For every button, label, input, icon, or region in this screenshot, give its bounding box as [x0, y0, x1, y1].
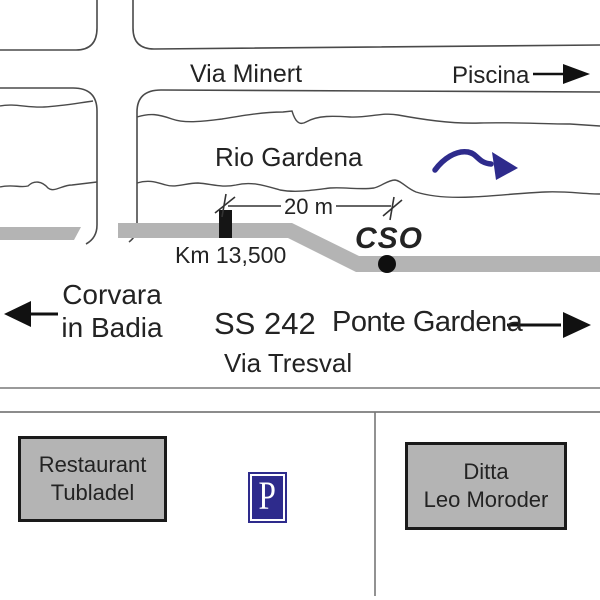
- side-road-left-edge: [0, 0, 97, 50]
- map-canvas: Via Minert Piscina Rio Gardena 20 m Km 1…: [0, 0, 600, 600]
- ditta-name-line2: Leo Moroder: [424, 486, 549, 514]
- restaurant-name-line2: Tubladel: [51, 479, 135, 507]
- parking-p-letter: P: [259, 476, 276, 520]
- corvara-label-line1: Corvara: [51, 279, 173, 311]
- ponte-gardena-label: Ponte Gardena: [332, 306, 522, 339]
- ditta-leo-moroder-box: Ditta Leo Moroder: [405, 442, 567, 530]
- km-stone-icon: [219, 210, 232, 238]
- km-marker-label: Km 13,500: [175, 242, 286, 269]
- cso-label: CSO: [355, 222, 423, 256]
- corvara-arrow-icon: [4, 301, 58, 327]
- rio-gardena-label: Rio Gardena: [215, 142, 362, 173]
- parking-sign-icon: P: [248, 472, 287, 523]
- bridge-road-left-edge: [0, 88, 97, 244]
- distance-label: 20 m: [284, 194, 333, 220]
- piscina-label: Piscina: [452, 62, 529, 90]
- parking-sign-inner-border: P: [250, 474, 285, 521]
- bridge-road-right-edge: [129, 90, 600, 242]
- river-bank-lower-right: [137, 180, 600, 197]
- ss242-label: SS 242: [214, 306, 316, 342]
- river-flow-arrow-icon: [435, 152, 518, 180]
- via-tresval-label: Via Tresval: [224, 348, 352, 379]
- ditta-name-line1: Ditta: [463, 458, 508, 486]
- via-minert-top-edge: [133, 0, 600, 49]
- river-bank-upper-right: [137, 111, 600, 126]
- restaurant-name-line1: Restaurant: [39, 451, 147, 479]
- river-bank-upper-left: [0, 101, 93, 107]
- ss242-road-left-segment: [0, 227, 81, 240]
- via-minert-label: Via Minert: [166, 60, 326, 89]
- cso-location-dot: [378, 255, 396, 273]
- piscina-arrow-icon: [533, 64, 590, 84]
- corvara-label-line2: in Badia: [51, 312, 173, 344]
- restaurant-tubladel-box: Restaurant Tubladel: [18, 436, 167, 522]
- river-bank-lower-left: [0, 182, 97, 190]
